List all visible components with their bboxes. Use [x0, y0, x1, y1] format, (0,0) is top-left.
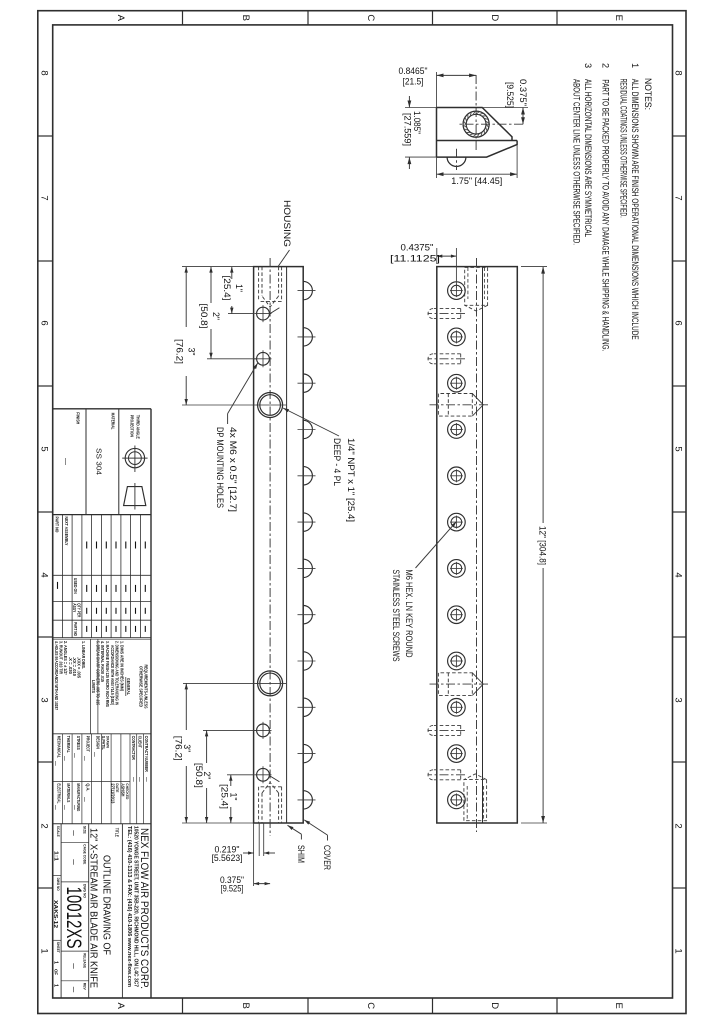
svg-text:[9.525]: [9.525]	[221, 884, 244, 895]
svg-text:GENERAL: GENERAL	[126, 678, 131, 695]
svg-text:ALL HORIZONTAL DIMENSIONS ARE: ALL HORIZONTAL DIMENSIONS ARE SYMMETRICA…	[583, 79, 593, 237]
svg-text:USED ON: USED ON	[72, 578, 78, 594]
svg-text:0.4375": 0.4375"	[401, 243, 434, 254]
svg-text:ASHISH: ASHISH	[121, 783, 126, 797]
svg-text:A: A	[115, 1003, 126, 1010]
svg-text:RESIDUAL COATINGS UNLESS OTHER: RESIDUAL COATINGS UNLESS OTHERWISE SPECI…	[618, 79, 628, 218]
svg-text:2": 2"	[210, 312, 221, 320]
svg-text:CONTRACT NUMBER: CONTRACT NUMBER	[144, 736, 149, 773]
svg-text:1: 1	[39, 948, 50, 953]
svg-text:4x M6 x 0.5" [12.7]: 4x M6 x 0.5" [12.7]	[227, 427, 238, 512]
svg-text:1": 1"	[233, 284, 244, 292]
svg-text:DWG NO: DWG NO	[56, 878, 61, 891]
svg-text:3: 3	[583, 63, 593, 68]
svg-text:—: —	[70, 987, 76, 993]
svg-text:SHIM: SHIM	[295, 845, 306, 863]
svg-text:10012XS: 10012XS	[62, 887, 85, 949]
svg-text:—: —	[62, 805, 67, 810]
svg-text:RELEASE: RELEASE	[83, 953, 88, 968]
svg-text:10520 YONGE STREET, UNIT 35B-2: 10520 YONGE STREET, UNIT 35B-220, RICHMO…	[133, 826, 139, 987]
svg-text:NEXT ASSEMBLY: NEXT ASSEMBLY	[63, 517, 69, 547]
svg-text:12" [304.8]: 12" [304.8]	[537, 526, 548, 565]
svg-text:OF: OF	[54, 969, 59, 975]
svg-text:DP MOUNTING HOLES: DP MOUNTING HOLES	[214, 427, 225, 508]
svg-text:1: 1	[53, 961, 59, 964]
svg-text:—: —	[70, 963, 76, 969]
svg-text:1.75" [44.45]: 1.75" [44.45]	[451, 176, 502, 187]
svg-text:THIRD ANGLE: THIRD ANGLE	[135, 415, 141, 440]
svg-text:[76.2]: [76.2]	[174, 339, 185, 364]
svg-text:NEX FLOW AIR PRODUCTS CORP.: NEX FLOW AIR PRODUCTS CORP.	[138, 828, 150, 989]
svg-text:PROJECT: PROJECT	[86, 736, 91, 752]
svg-text:7: 7	[39, 195, 50, 200]
svg-text:0.8465": 0.8465"	[399, 66, 428, 77]
svg-text:REV: REV	[83, 983, 88, 990]
svg-text:4. HOLES IN ACCORDANCE WITH AN: 4. HOLES IN ACCORDANCE WITH AND 10287	[54, 641, 59, 711]
svg-text:2: 2	[673, 823, 684, 828]
svg-text:[76.2]: [76.2]	[173, 736, 184, 761]
svg-text:—: —	[71, 753, 76, 758]
svg-text:2: 2	[601, 63, 611, 68]
svg-text:6: 6	[39, 320, 50, 325]
svg-text:XAKS-12: XAKS-12	[52, 900, 58, 928]
svg-text:[9.525]: [9.525]	[504, 82, 515, 108]
svg-text:A: A	[115, 15, 126, 22]
svg-text:27/11/2013: 27/11/2013	[111, 783, 116, 803]
svg-text:12" X-STREAM AIR BLADE AIR KNI: 12" X-STREAM AIR BLADE AIR KNIFE	[88, 828, 100, 988]
svg-text:CAGE CODE: CAGE CODE	[83, 844, 88, 864]
svg-text:C: C	[365, 1002, 376, 1009]
svg-text:[25.4]: [25.4]	[219, 784, 230, 809]
svg-text:B: B	[240, 1003, 251, 1009]
svg-text:—: —	[137, 777, 142, 782]
svg-text:—: —	[52, 761, 57, 766]
svg-text:MATERIALS: MATERIALS	[66, 783, 71, 802]
svg-text:D: D	[489, 1002, 500, 1009]
svg-text:8: 8	[39, 70, 50, 75]
svg-text:—: —	[62, 458, 69, 465]
svg-text:TITLE: TITLE	[115, 828, 120, 837]
svg-text:3": 3"	[186, 348, 197, 356]
svg-text:OUTLINE DRAWING OF: OUTLINE DRAWING OF	[101, 855, 113, 955]
svg-text:5: 5	[673, 446, 684, 451]
svg-text:—: —	[143, 777, 148, 782]
svg-text:6: 6	[673, 320, 684, 325]
svg-text:—: —	[71, 805, 76, 810]
svg-text:5: 5	[39, 446, 50, 451]
svg-text:ABOUT CENTER LINE UNLESS OTHER: ABOUT CENTER LINE UNLESS OTHERWISE SPECI…	[571, 79, 581, 245]
svg-text:MECHANICAL: MECHANICAL	[57, 736, 62, 758]
svg-text:1:1: 1:1	[53, 851, 59, 861]
svg-text:[27.559]: [27.559]	[402, 113, 413, 146]
svg-text:DEEP - 4 PL: DEEP - 4 PL	[331, 438, 342, 486]
svg-text:S.PATIL: S.PATIL	[101, 736, 106, 750]
svg-text:4: 4	[673, 572, 684, 577]
svg-text:STRESS: STRESS	[76, 736, 81, 750]
svg-text:DESIGN: DESIGN	[96, 736, 101, 749]
svg-text:SIZE: SIZE	[83, 826, 88, 834]
svg-text:8: 8	[673, 70, 684, 75]
svg-text:[50.8]: [50.8]	[193, 763, 204, 788]
svg-text:PART NO: PART NO	[54, 517, 60, 533]
svg-text:Q.A.: Q.A.	[86, 783, 91, 791]
svg-text:—: —	[81, 756, 86, 761]
svg-text:[5.5623]: [5.5623]	[212, 853, 243, 864]
svg-text:STAINLESS STEEL SCREWS: STAINLESS STEEL SCREWS	[390, 570, 401, 662]
svg-text:E: E	[613, 15, 624, 21]
svg-text:[11.1125]: [11.1125]	[390, 254, 440, 265]
svg-text:7: 7	[673, 195, 684, 200]
svg-text:[21.5]: [21.5]	[403, 77, 424, 88]
svg-text:PART NO: PART NO	[72, 622, 78, 636]
svg-text:3: 3	[673, 697, 684, 702]
svg-text:THERMAL: THERMAL	[66, 736, 71, 753]
svg-text:1/4" NPT x 1" [25.4]: 1/4" NPT x 1" [25.4]	[345, 438, 356, 522]
svg-text:CONTRACTOR: CONTRACTOR	[131, 736, 136, 761]
svg-text:3: 3	[39, 697, 50, 702]
svg-text:E: E	[613, 1003, 624, 1009]
svg-text:[25.4]: [25.4]	[221, 276, 232, 301]
svg-text:4: 4	[39, 572, 50, 577]
svg-text:—: —	[91, 752, 96, 757]
svg-text:PROJECTION: PROJECTION	[129, 415, 135, 437]
svg-text:FINISH: FINISH	[75, 412, 81, 424]
svg-text:HOUSING: HOUSING	[281, 200, 292, 247]
svg-text:TEL: (416) 410-1313 & FAX: (41: TEL: (416) 410-1313 & FAX: (416) 410-180…	[126, 826, 132, 988]
svg-text:1: 1	[630, 63, 640, 68]
svg-text:CLIENT: CLIENT	[138, 736, 143, 748]
svg-text:PART TO BE PACKED PROPERLY TO: PART TO BE PACKED PROPERLY TO AVOID ANY …	[601, 79, 611, 351]
svg-text:B: B	[240, 15, 251, 21]
svg-text:—: —	[52, 805, 57, 810]
svg-text:—: —	[130, 777, 135, 782]
svg-text:COVER: COVER	[321, 845, 332, 870]
svg-text:ASSY: ASSY	[72, 603, 77, 612]
svg-text:—: —	[70, 859, 76, 865]
svg-text:SHEET: SHEET	[56, 942, 61, 954]
svg-text:2: 2	[39, 823, 50, 828]
svg-text:OTHERWISE SPECIFIED: OTHERWISE SPECIFIED	[139, 666, 144, 707]
svg-text:LIMITS: LIMITS	[91, 680, 96, 693]
svg-text:C: C	[365, 14, 376, 21]
svg-text:ALL DIMENSIONS SHOWN ARE FINIS: ALL DIMENSIONS SHOWN ARE FINISH OPERATIO…	[630, 79, 640, 340]
svg-text:NOTES:: NOTES:	[643, 78, 653, 110]
svg-text:0.375": 0.375"	[517, 79, 528, 106]
svg-text:1: 1	[53, 984, 59, 987]
svg-text:MATERIAL: MATERIAL	[110, 413, 116, 430]
svg-text:SS 304: SS 304	[95, 448, 104, 475]
svg-text:1: 1	[673, 948, 684, 953]
svg-text:M6 HEX. LN KEY ROUND: M6 HEX. LN KEY ROUND	[403, 570, 414, 658]
svg-text:ELECTRICAL: ELECTRICAL	[57, 783, 62, 803]
svg-text:[50.8]: [50.8]	[198, 304, 209, 329]
svg-text:SCALE: SCALE	[56, 826, 61, 837]
svg-text:—: —	[70, 830, 76, 836]
svg-text:D: D	[489, 14, 500, 21]
